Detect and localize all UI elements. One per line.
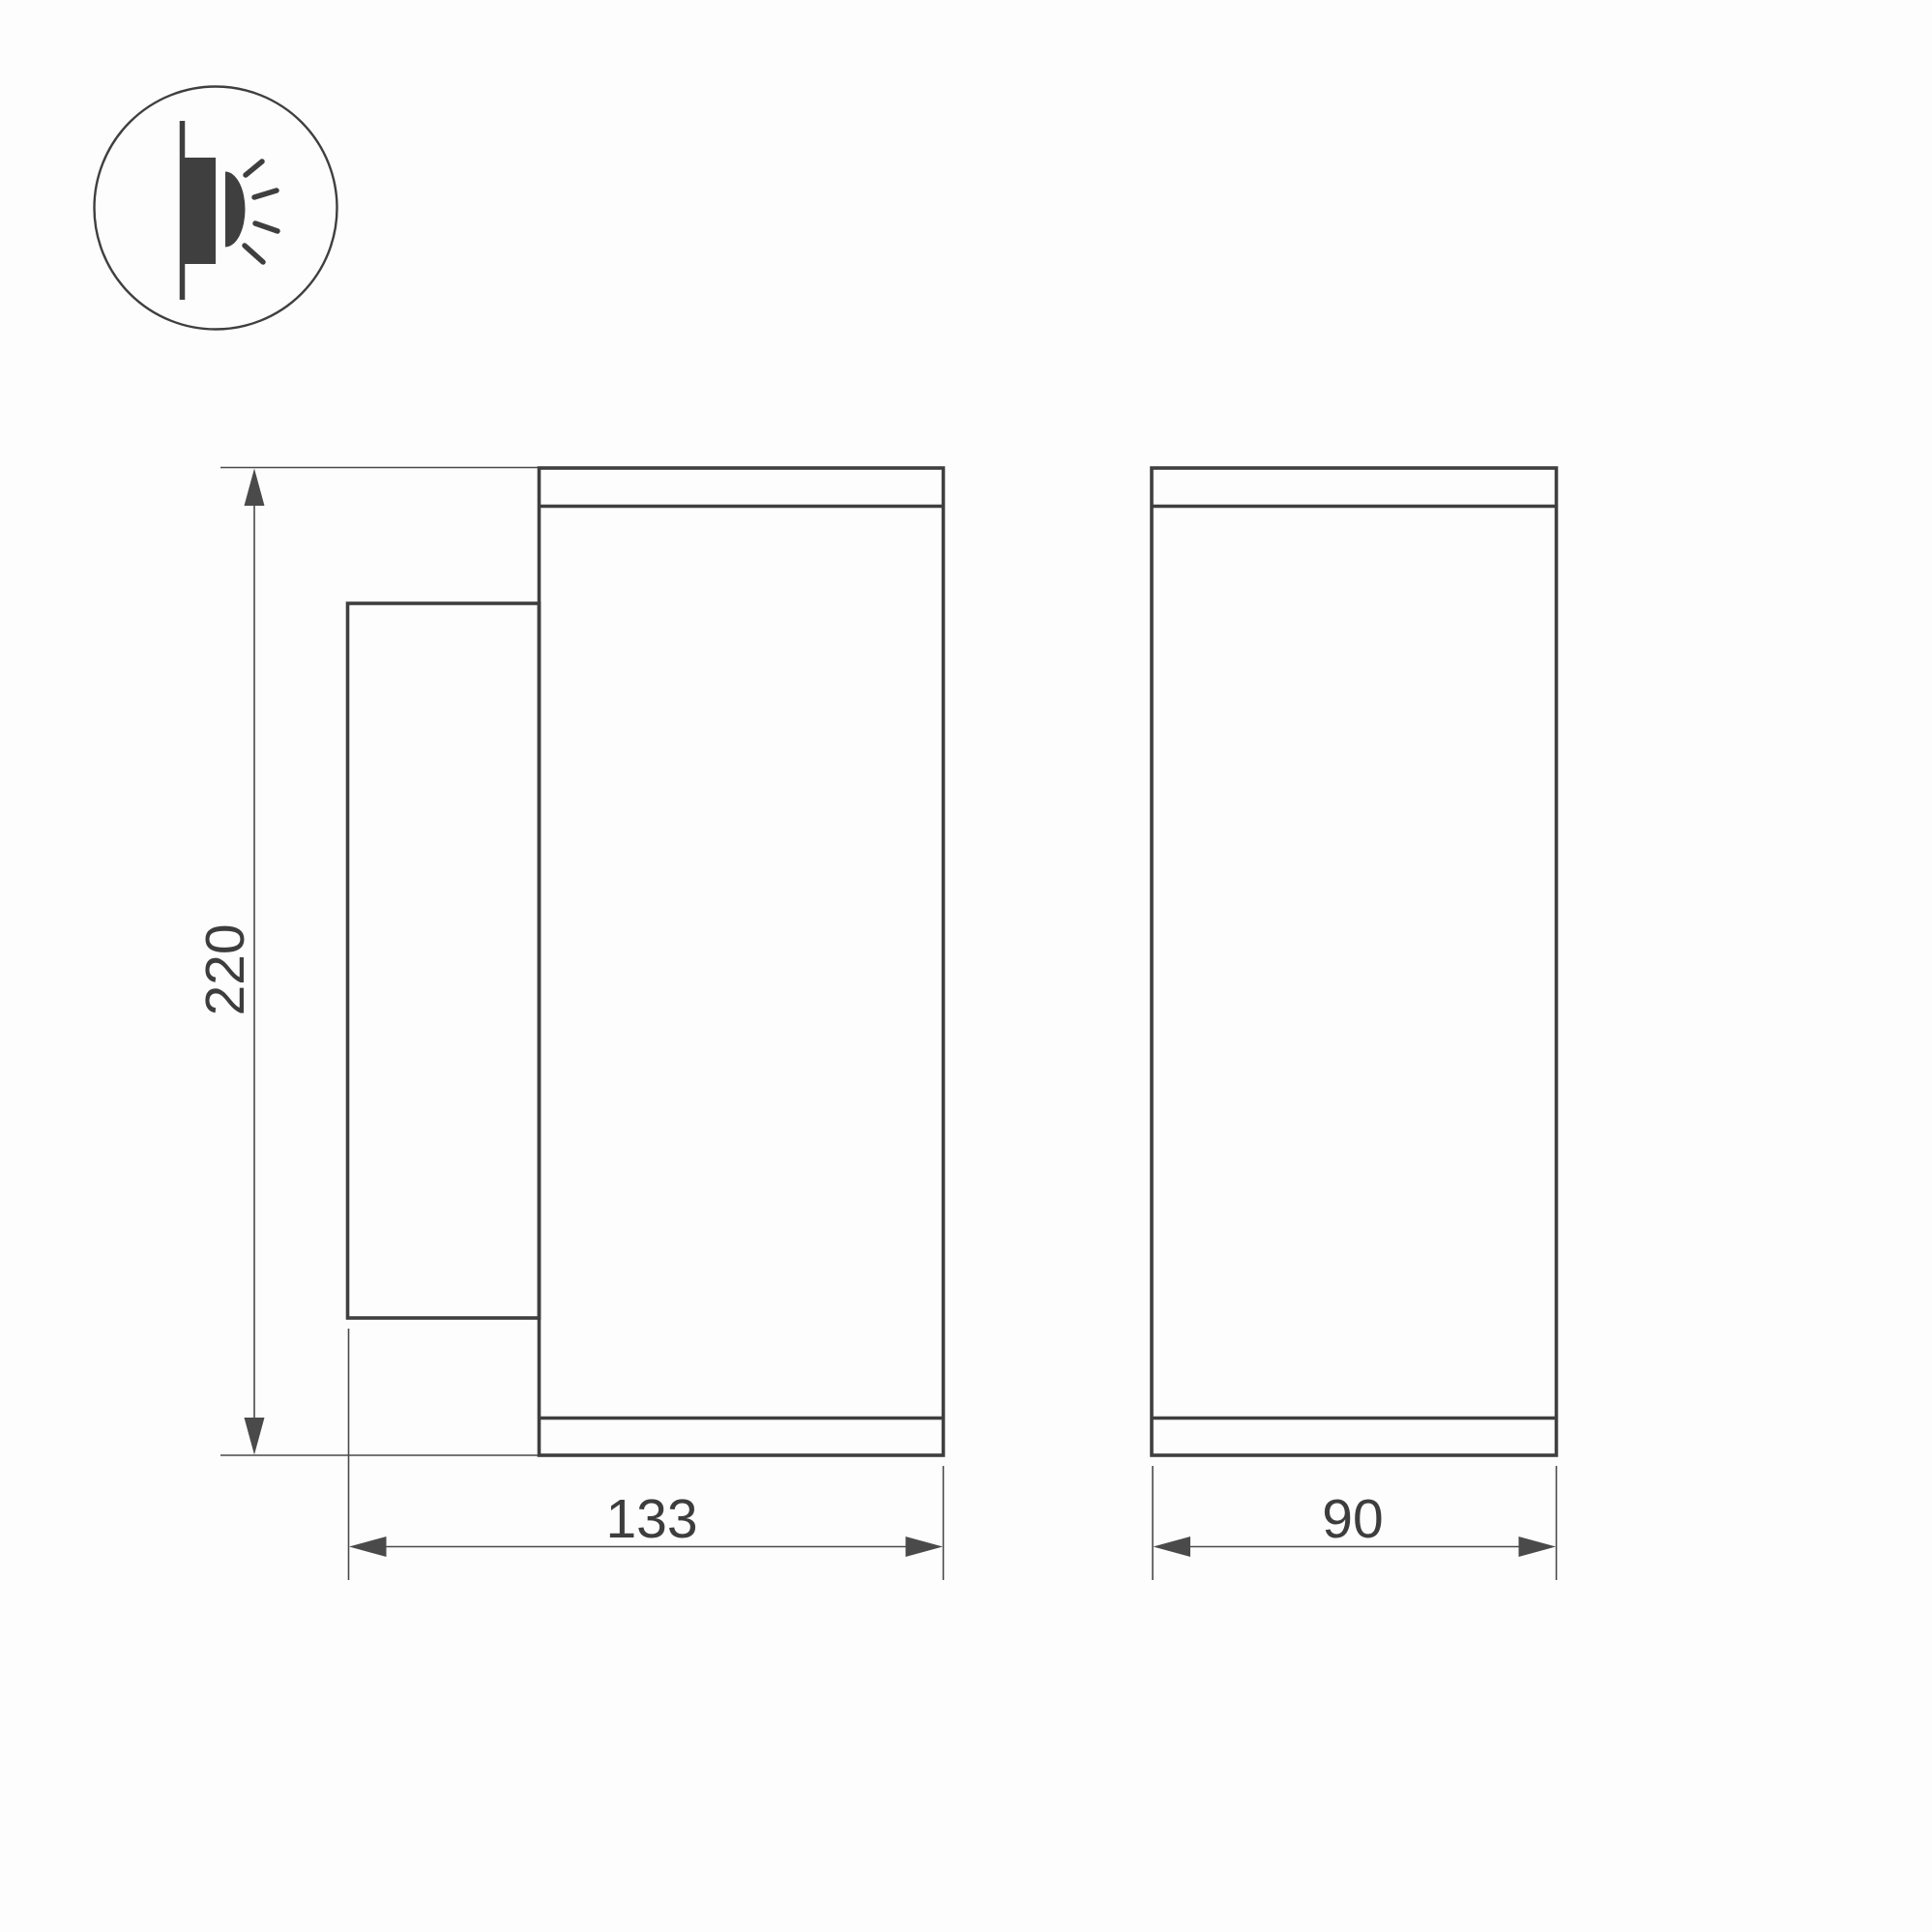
dimension-label-height: 220 [194,923,256,1015]
wall-light-icon [95,87,337,330]
icon-light-ray [245,246,263,262]
arrowhead-left-icon [349,1537,387,1557]
technical-drawing: 220 133 90 [0,0,1932,1932]
arrowhead-down-icon [245,1418,265,1455]
mounting-plate-outline [348,603,540,1318]
icon-light-ray [246,161,262,175]
drawing-canvas: 220 133 90 [0,0,1932,1932]
side-body-outline [540,468,944,1455]
front-body-outline [1152,468,1557,1455]
front-view [1152,468,1557,1455]
arrowhead-left-icon [1154,1537,1191,1557]
dimension-label-width-side: 133 [605,1488,697,1550]
arrowhead-right-icon [1519,1537,1557,1557]
icon-fixture-body [185,158,216,264]
icon-light-ray [255,223,278,231]
icon-light-dome [225,172,246,248]
icon-light-ray [254,190,277,197]
arrowhead-up-icon [245,469,265,507]
side-view [348,468,944,1455]
dimension-height: 220 [194,468,538,1456]
dimension-width-front: 90 [1153,1466,1557,1580]
arrowhead-right-icon [906,1537,944,1557]
dimension-label-width-front: 90 [1322,1488,1383,1550]
